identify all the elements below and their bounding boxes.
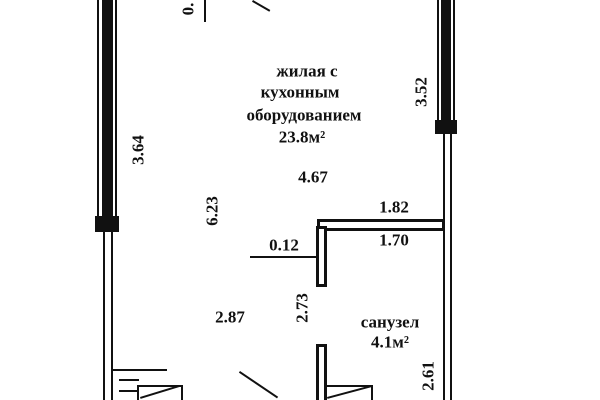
dimension-tick-top <box>204 0 206 22</box>
wall-left-lower-line-a <box>103 232 105 400</box>
wall-left-inner-line <box>115 0 117 230</box>
partition-bathroom-left-wall-lower <box>316 344 327 400</box>
wall-left-core <box>102 0 113 230</box>
wall-left-outer-line <box>97 0 99 230</box>
wall-left-lower-line-b <box>111 232 113 400</box>
door-swing-line-bathroom <box>239 371 278 398</box>
wall-right-inner-line <box>453 0 455 122</box>
wall-right-lower-line-a <box>443 134 445 400</box>
dim-top-cut: 0. <box>180 3 197 16</box>
dim-left-outer: 3.64 <box>130 135 147 165</box>
partition-bathroom-left-wall-upper <box>316 226 327 287</box>
door-swing-mark-top <box>252 0 270 12</box>
sink-diagonal <box>327 385 372 399</box>
living-room-area: 23.8м² <box>279 129 325 146</box>
bathroom-label: санузел <box>361 314 419 331</box>
radiator-rung-top <box>119 379 139 381</box>
dim-right-outer: 3.52 <box>413 77 430 107</box>
dim-bath-right: 2.61 <box>420 361 437 391</box>
sink-right-edge <box>371 385 373 400</box>
dim-bottom-width: 2.87 <box>215 309 245 326</box>
living-room-label-line1: жилая с <box>276 63 337 80</box>
dim-bath-left: 2.73 <box>294 293 311 323</box>
partition-bathroom-top-wall <box>317 219 445 231</box>
wall-right-lower-line-b <box>450 134 452 400</box>
living-room-label-line2: кухонным <box>261 84 340 101</box>
dim-partition-above: 1.82 <box>379 199 409 216</box>
dim-partition-thickness: 0.12 <box>269 237 299 254</box>
wall-right-end-cap <box>435 120 457 134</box>
living-room-label-line3: оборудованием <box>246 107 361 124</box>
wall-left-end-cap <box>95 216 119 232</box>
dim-living-width: 4.67 <box>298 169 328 186</box>
wall-right-core <box>441 0 451 122</box>
dim-partition-below: 1.70 <box>379 232 409 249</box>
wall-right-outer-line <box>437 0 439 122</box>
kitchen-counter-edge <box>113 369 167 371</box>
bathroom-area: 4.1м² <box>371 334 409 351</box>
radiator-rung-bottom <box>119 390 139 392</box>
dim-left-inner: 6.23 <box>204 196 221 226</box>
dimension-line-partition-thickness <box>250 256 316 258</box>
floor-plan: жилая с кухонным оборудованием 23.8м² са… <box>0 0 600 400</box>
